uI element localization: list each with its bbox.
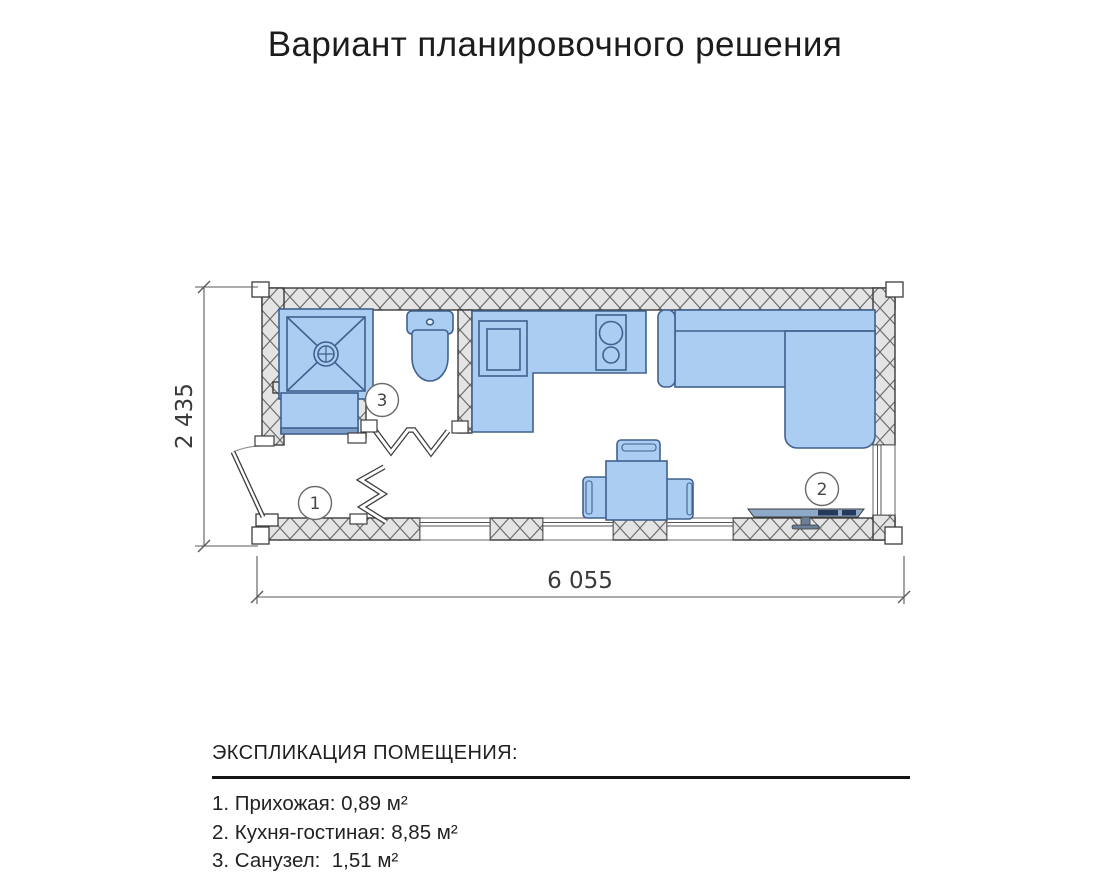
svg-text:2: 2 <box>817 480 828 500</box>
dimension-width-label: 6 055 <box>547 568 613 594</box>
legend-item-bathroom: 3. Санузел: 1,51 м² <box>212 847 910 876</box>
door-swing-arc <box>233 446 263 452</box>
room-legend: ЭКСПЛИКАЦИЯ ПОМЕЩЕНИЯ: 1. Прихожая: 0,89… <box>212 742 910 876</box>
legend-header: ЭКСПЛИКАЦИЯ ПОМЕЩЕНИЯ: <box>212 742 910 765</box>
legend-divider <box>212 776 910 779</box>
chair <box>665 479 693 519</box>
shower-tray <box>279 309 373 399</box>
wall-bottom-segment <box>490 518 543 540</box>
floor-plan: 1 2 3 2 435 6 055 <box>0 0 1110 660</box>
wall-right-upper <box>873 288 895 445</box>
legend-item-hallway: 1. Прихожая: 0,89 м² <box>212 790 910 819</box>
dimension-height-label: 2 435 <box>172 383 198 449</box>
wall-bottom-segment <box>613 518 667 540</box>
window <box>667 518 733 540</box>
wall-top <box>262 288 895 310</box>
corner-post <box>886 282 903 297</box>
legend-item-kitchen-living: 2. Кухня-гостиная: 8,85 м² <box>212 819 910 848</box>
wall-bathroom-partition <box>458 310 472 433</box>
window <box>420 518 490 540</box>
dimension-height <box>195 281 258 552</box>
dining-table <box>606 461 667 520</box>
svg-text:3: 3 <box>377 391 388 411</box>
room-marker-3: 3 <box>366 384 399 417</box>
room-marker-1: 1 <box>299 487 332 520</box>
svg-text:1: 1 <box>310 494 321 514</box>
chair <box>617 440 660 463</box>
door-hinge-block <box>256 514 278 526</box>
window <box>873 445 895 515</box>
washing-machine <box>281 393 358 434</box>
window <box>543 518 613 540</box>
door-jamb-cap <box>255 436 274 446</box>
corner-post <box>885 527 902 544</box>
legend-items: 1. Прихожая: 0,89 м² 2. Кухня-гостиная: … <box>212 790 910 876</box>
door-leaf <box>233 452 263 517</box>
corner-post <box>252 282 269 297</box>
wall-bottom-segment <box>262 518 420 540</box>
corner-post <box>252 527 269 544</box>
room-marker-2: 2 <box>806 473 839 506</box>
chair <box>583 477 608 518</box>
